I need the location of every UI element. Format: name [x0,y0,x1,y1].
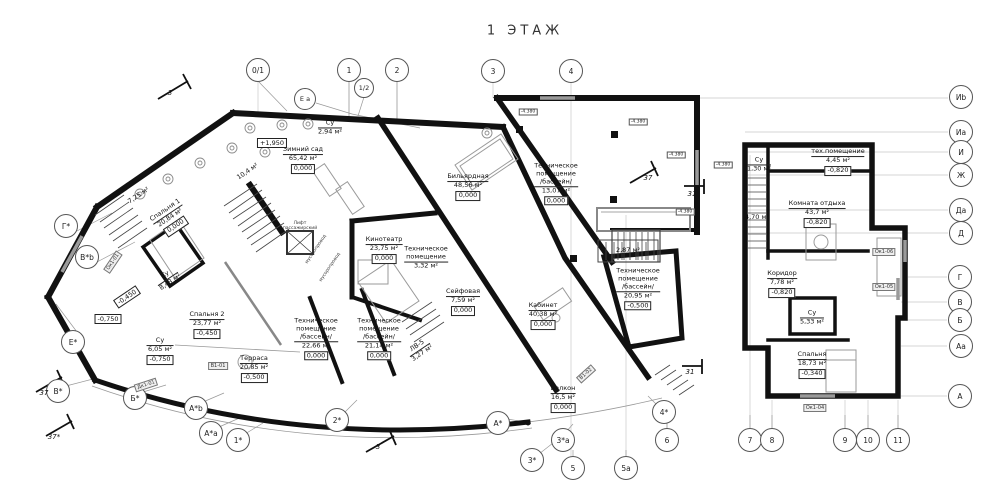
room-label: Терраса20,85 м²-0,500 [240,355,268,383]
room-label: тех.помещение4,45 м²-0,820 [811,148,864,176]
room-area: 2,87 м² [616,247,640,255]
room-label: Техническое помещение3,32 м² [404,246,448,271]
room-area: 2,94 м² [318,129,342,137]
axis-bubble: 11 [886,428,910,452]
opening-tag: Ок1-04 [803,404,826,412]
section-marker-label: 31 [686,368,695,376]
elevation-mark: -0,750 [95,314,122,324]
room-area: 16,5 м² [551,394,576,402]
small-annotation-text: Лифт пассажирский [283,222,317,232]
axis-bubble: В* [46,379,70,403]
axis-bubble: 0/1 [246,58,270,82]
small-elevation-tag: -4.380 [519,109,538,116]
room-level-mark: -0,820 [825,166,852,176]
room-label: Су5,33 м² [800,309,824,326]
small-elevation-tag: -4.380 [667,152,686,159]
room-label: Спальня 223,77 м²-0,450 [189,311,224,339]
room-area: 7,59 м² [446,297,480,305]
staircases [95,178,766,395]
room-level-mark: 0,000 [372,254,397,264]
room-label: Балкон16,5 м²0,000 [551,385,576,413]
room-area: 23,77 м² [189,320,224,328]
exterior-walls [48,98,905,430]
axis-bubble: 1 [337,58,361,82]
room-label: Техническое помещение /бассейн/20,95 м²-… [616,267,660,310]
room-area: 1,30 м² [747,166,771,174]
axis-bubble: Ж [949,163,973,187]
small-elevation-tag: -4.380 [629,119,648,126]
room-level-mark: 0,000 [544,196,569,206]
axis-bubble: 5 [561,456,585,480]
room-name: Техническое помещение /бассейн/ [616,267,660,292]
room-level-mark: -0,820 [804,218,831,228]
room-label: 4,70 м² [745,214,769,222]
axis-bubble: 3*а [551,428,575,452]
axis-bubble: А*а [199,421,223,445]
axis-bubble: 3* [520,448,544,472]
axis-bubble: 5а [614,456,638,480]
room-label: Бильярдная48,56 м²0,000 [447,173,488,201]
room-level-mark: 0,000 [367,351,392,361]
axis-bubble: Иb [949,85,973,109]
room-level-mark: 0,000 [456,191,481,201]
axis-bubble: 10 [856,428,880,452]
axis-bubble: Е а [294,88,316,110]
axis-bubble: 1/2 [354,78,374,98]
axis-bubble: 1* [226,428,250,452]
room-label: Коридор7,78 м²-0,820 [767,270,797,298]
section-marker-label: 3 [168,89,172,97]
axis-bubble: Г* [54,214,78,238]
room-level-mark: -0,450 [194,329,221,339]
room-area: 23,75 м² [366,245,403,253]
room-name: Техническое помещение [404,246,448,263]
grid-lines [258,82,948,456]
opening-tag: В1-01 [208,362,228,370]
room-area: 43,7 м² [789,209,846,217]
room-level-mark: 0,000 [531,320,556,330]
room-label: Кабинет40,38 м²0,000 [529,302,558,330]
axis-bubble: 6 [655,428,679,452]
axis-bubble: А*b [184,396,208,420]
section-marker-label: 3 [376,443,380,451]
page-title: 1 ЭТАЖ [487,24,563,39]
room-level-mark: 0,000 [451,306,476,316]
elevator-shaft [287,231,313,254]
axis-bubble: Аа [949,334,973,358]
room-label: Спальня18,73 м²-0,340 [798,351,827,379]
room-level-mark: -0,750 [147,355,174,365]
room-label: Зимний сад65,42 м²0,000 [283,146,323,174]
opening-tag: Ок1-05 [872,283,895,291]
room-level-mark: 0,000 [304,351,329,361]
room-area: 18,73 м² [798,360,827,368]
room-area: 13,07 м² [534,187,578,195]
section-marker-label: 37 [644,174,653,182]
room-label: Су1,30 м² [747,156,771,173]
axis-bubble: Е* [61,330,85,354]
room-area: 6,05 м² [147,346,174,354]
axis-bubble: 3 [481,59,505,83]
room-area: 21,14 м² [357,342,401,350]
room-area: 4,70 м² [745,214,769,222]
axis-bubble: А* [486,411,510,435]
room-name: Техническое помещение /бассейн/ [357,317,401,342]
room-level-mark: -0,820 [769,288,796,298]
axis-bubble: 9 [833,428,857,452]
axis-bubble: В*b [75,245,99,269]
floor-plan-page: 1 ЭТАЖ Зимний сад65,42 м²0,000Су2,94 м²1… [0,0,1000,503]
room-name: Техническое помещение /бассейн/ [534,162,578,187]
room-label: Комната отдыха43,7 м²-0,820 [789,200,846,228]
axis-bubble: И [949,140,973,164]
room-label: Техническое помещение /бассейн/22,66 м²0… [294,317,338,360]
room-name: Техническое помещение /бассейн/ [294,317,338,342]
axis-bubble: 4* [652,400,676,424]
room-level-mark: -0,500 [241,373,268,383]
axis-bubble: 2 [385,58,409,82]
room-level-mark: 0,000 [551,403,576,413]
axis-bubble: 8 [760,428,784,452]
room-area: 3,32 м² [404,263,448,271]
room-area: 7,78 м² [767,279,797,287]
room-level-mark: -0,500 [625,301,652,311]
room-area: 20,95 м² [616,292,660,300]
axis-bubble: Д [949,221,973,245]
room-label: Техническое помещение /бассейн/21,14 м²0… [357,317,401,360]
room-area: 5,33 м² [800,319,824,327]
small-elevation-tag: -4.380 [714,162,733,169]
room-area: 48,56 м² [447,182,488,190]
room-level-mark: 0,000 [291,164,316,174]
room-area: 40,38 м² [529,311,558,319]
small-elevation-tag: -4.380 [676,209,695,216]
axis-bubble: 2* [325,408,349,432]
room-area: 65,42 м² [283,155,323,163]
elevation-mark: +1,950 [257,138,287,148]
axis-bubble: Б [948,308,972,332]
section-marker-label: 37* [48,433,60,441]
room-label: 2,87 м² [616,247,640,255]
room-label: Су2,94 м² [318,119,342,136]
axis-bubble: 7 [738,428,762,452]
axis-bubble: А [948,384,972,408]
axis-bubble: Да [949,198,973,222]
axis-bubble: Г [948,265,972,289]
room-area: 20,85 м² [240,364,268,372]
room-level-mark: -0,340 [799,369,826,379]
room-area: 22,66 м² [294,342,338,350]
room-label: Сейфовая7,59 м²0,000 [446,288,480,316]
room-area: 4,45 м² [811,157,864,165]
axis-bubble: 4 [559,59,583,83]
room-label: Кинотеатр23,75 м²0,000 [366,236,403,264]
room-label: Техническое помещение /бассейн/13,07 м²0… [534,162,578,205]
opening-tag: Ок1-06 [872,248,895,256]
section-marker-label: 37 [40,389,49,397]
room-label: Су6,05 м²-0,750 [147,337,174,365]
section-marker-label: 31 [688,190,697,198]
